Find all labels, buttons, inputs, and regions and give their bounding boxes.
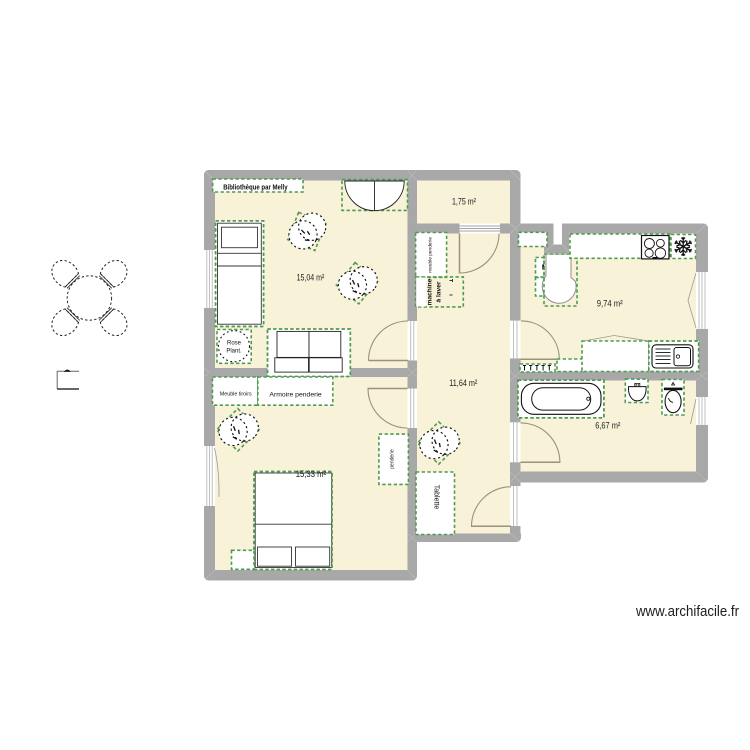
svg-text:9,74 m²: 9,74 m² xyxy=(597,298,623,308)
svg-text:à laver: à laver xyxy=(436,281,443,302)
svg-text:Meuble tiroirs: Meuble tiroirs xyxy=(220,391,252,397)
svg-text:11,64 m²: 11,64 m² xyxy=(449,378,477,388)
svg-text:15,33 m²: 15,33 m² xyxy=(296,469,327,479)
svg-text:Rose: Rose xyxy=(227,341,242,347)
svg-text:Plant.: Plant. xyxy=(226,349,242,355)
svg-text:15,04 m²: 15,04 m² xyxy=(297,273,325,283)
svg-text:Tablette: Tablette xyxy=(433,485,440,510)
svg-text:1,75 m²: 1,75 m² xyxy=(452,196,476,206)
svg-text:machine: machine xyxy=(427,278,434,305)
svg-text:6,67 m²: 6,67 m² xyxy=(595,421,620,431)
svg-text:Bibliothèque par Melly: Bibliothèque par Melly xyxy=(223,184,287,191)
svg-text:penderie: penderie xyxy=(390,449,396,469)
svg-text:meuble penderie: meuble penderie xyxy=(428,237,434,273)
svg-text:www.archifacile.fr: www.archifacile.fr xyxy=(635,603,739,620)
svg-text:Armoire penderie: Armoire penderie xyxy=(269,391,322,398)
